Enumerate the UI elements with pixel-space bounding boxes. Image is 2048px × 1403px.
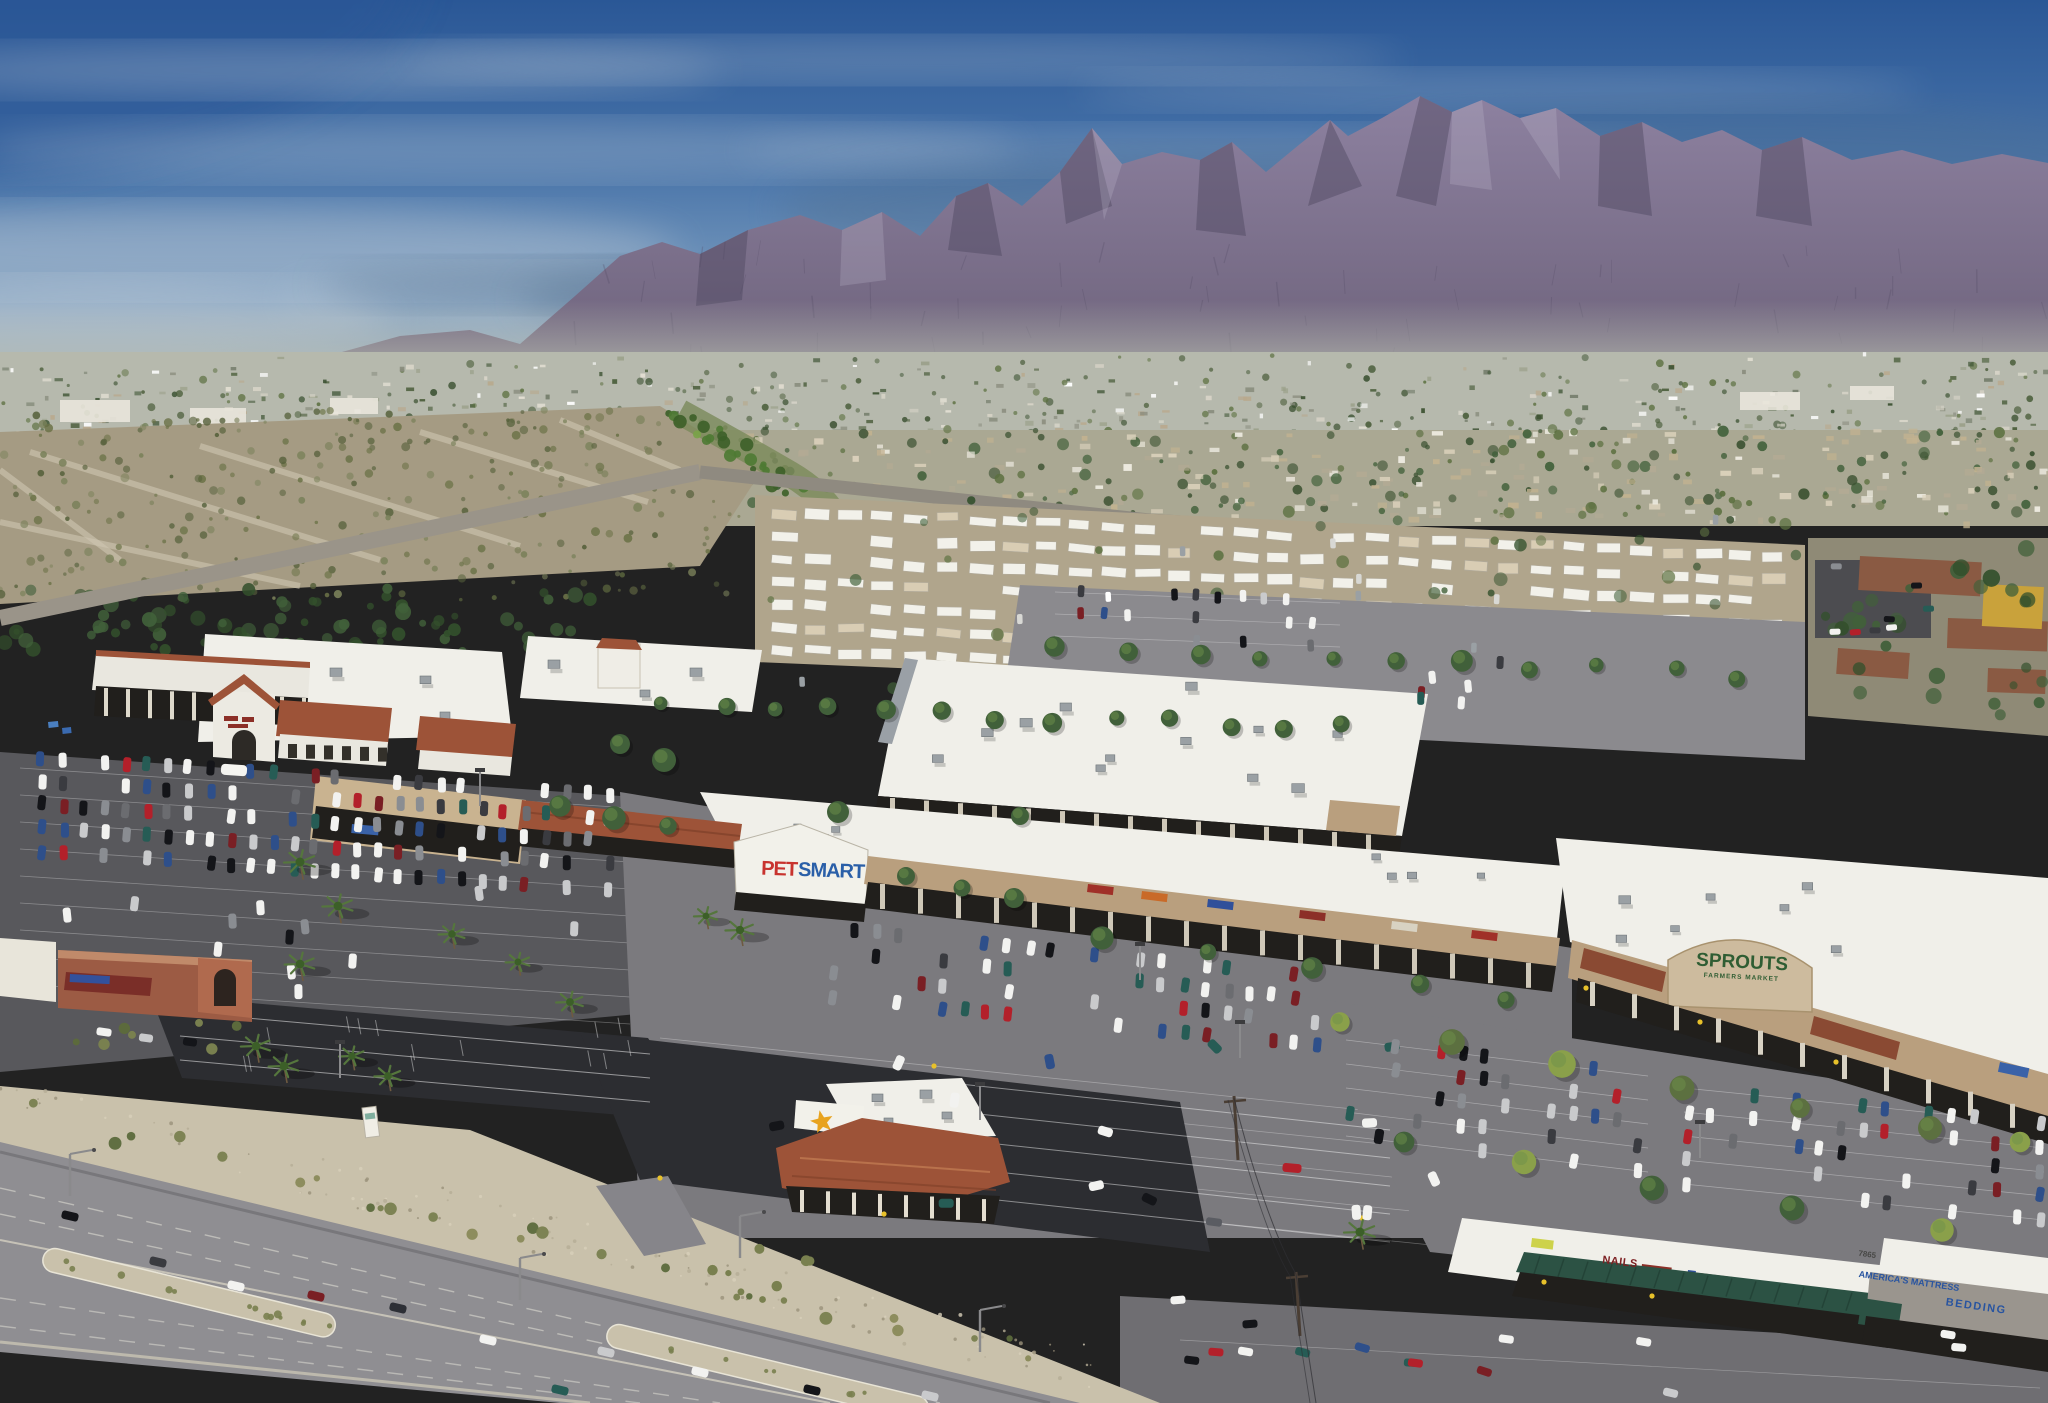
car [182,759,191,775]
car [1480,1048,1489,1064]
car [351,864,359,879]
car [1923,606,1934,612]
car [249,834,258,849]
car [162,804,170,819]
car [289,812,297,827]
car [1201,1003,1210,1018]
car [1496,656,1504,669]
car [123,757,132,773]
car [185,784,193,799]
car [1634,1163,1643,1178]
car [459,799,467,814]
car [1713,515,1719,525]
car [584,785,592,800]
car [101,824,109,839]
car [415,821,424,837]
car [938,978,947,993]
car [873,924,881,939]
car [1017,614,1023,624]
car [227,858,235,873]
car [162,783,170,798]
car [458,847,466,862]
car [348,953,357,969]
car [353,842,361,857]
car [246,764,254,779]
car [498,804,507,819]
car [1456,1118,1465,1134]
car [101,755,109,770]
car [437,869,445,884]
car [606,788,614,803]
car [1870,627,1881,633]
car [79,822,88,838]
car [213,941,222,957]
car [501,851,509,866]
car [961,1001,971,1017]
car [121,803,130,819]
car [1158,1023,1167,1039]
car [267,859,276,875]
car [61,823,69,838]
car [1682,1177,1691,1192]
car [1471,643,1477,653]
car [144,804,152,819]
car [164,852,172,867]
car [850,923,858,938]
car [1286,616,1293,628]
car [1171,588,1178,600]
car [1223,1005,1232,1021]
car [436,823,446,839]
car [1180,546,1186,556]
aerial-scene: PET SMART SPROUTS FARMERS MARKET NAILS 7… [0,0,2048,1403]
car [570,921,579,936]
car [1457,696,1465,709]
car [563,855,571,870]
car [1413,1114,1422,1130]
car [1310,1015,1319,1031]
car [416,797,424,812]
car [332,840,341,856]
car [331,863,340,878]
car [1240,590,1247,602]
car [498,827,506,842]
car [1157,953,1166,969]
car [1240,636,1247,648]
car [143,779,152,795]
car [1949,1130,1958,1146]
car [1829,629,1840,635]
car [60,799,69,814]
car [285,929,294,944]
car [1200,982,1210,998]
car [563,831,572,846]
car [1307,639,1314,651]
car [300,919,310,935]
car [330,816,340,832]
car [36,751,44,766]
car [38,774,47,789]
car [520,829,528,844]
car [59,845,67,860]
car [1478,1119,1487,1134]
car [393,869,401,884]
car [1850,629,1861,636]
car [1884,616,1895,622]
car [1362,1118,1377,1128]
car [1214,592,1221,604]
car [142,756,151,772]
car [354,817,364,833]
car [1077,607,1084,619]
car [2036,1212,2045,1228]
car [542,805,550,820]
car [1225,984,1234,999]
car [540,783,549,799]
car [122,827,131,843]
car [312,768,320,783]
car [331,769,339,784]
car [1902,1173,1911,1188]
car [1728,1133,1738,1149]
car [562,880,571,895]
car [1749,1111,1758,1126]
car [1078,585,1085,597]
car [101,800,110,816]
car [1479,1071,1488,1087]
car [1706,1108,1714,1123]
car [1124,609,1131,621]
car [1882,1195,1891,1211]
car [221,764,248,777]
car [1260,592,1267,604]
car [917,976,926,991]
car [1794,1139,1804,1155]
car [309,839,318,854]
car [437,799,445,814]
car [1501,1098,1510,1114]
car [1494,594,1500,604]
car [1750,1088,1759,1103]
car [394,820,404,836]
car [583,831,593,847]
car [1289,1034,1298,1050]
car [1859,1122,1868,1138]
car [2013,1209,2021,1224]
car [1282,1163,1302,1174]
car [1968,1180,1977,1196]
car [499,876,507,891]
car [1589,1061,1598,1077]
car [79,800,88,815]
car [1208,1347,1224,1356]
petsmart-sign-smart: SMART [798,859,866,883]
car [1362,1205,1372,1221]
car [1547,1129,1556,1144]
car [394,845,402,860]
car [1993,1182,2002,1197]
car [1170,1295,1186,1304]
car [606,856,615,871]
car [374,796,383,812]
car [520,850,529,865]
car [1991,1158,2000,1174]
car [799,677,805,687]
car [871,949,880,965]
car [1283,593,1290,605]
car [1951,1343,1967,1352]
car [1090,994,1100,1010]
car [374,842,383,857]
car [1179,1001,1188,1017]
car [290,836,300,852]
car [332,792,342,808]
car [142,827,151,842]
car [208,784,216,799]
car [37,795,47,811]
car [186,830,195,845]
car [1831,563,1842,569]
car [1355,591,1361,601]
car [62,907,72,923]
car [1156,977,1164,992]
aerial-photo-shopping-center: PET SMART SPROUTS FARMERS MARKET NAILS 7… [0,0,2048,1403]
plaza-red-sign [224,716,238,721]
car [229,785,237,800]
car [982,958,991,974]
car [1192,588,1199,600]
car [1886,624,1897,631]
car [1428,671,1436,685]
car [1003,1006,1013,1022]
car [1245,986,1253,1001]
car [1880,1124,1889,1139]
car [438,778,446,793]
car [374,867,384,883]
car [353,793,362,808]
car [37,819,47,835]
car [1330,538,1336,548]
car [228,833,237,849]
car [164,829,173,844]
car [1417,692,1424,705]
car [2035,1164,2044,1179]
car [205,832,214,847]
car [458,871,466,886]
car [1356,574,1362,584]
car [2035,1140,2044,1155]
car [1351,1205,1361,1221]
car [939,1199,954,1208]
car [1192,611,1199,623]
plaza-red-sign [228,724,248,728]
car [1313,1037,1322,1053]
car [184,806,192,821]
car [1813,1166,1822,1182]
car [1457,1093,1466,1109]
car [1464,679,1472,693]
car [480,801,489,816]
car [477,825,486,841]
car [228,913,237,928]
car [164,758,172,773]
car [1682,1151,1691,1167]
car [59,776,68,791]
car [981,1004,989,1019]
car [1003,961,1011,976]
car [397,796,405,811]
car [373,817,381,832]
car [122,778,130,793]
petsmart-sign-pet: PET [761,858,798,881]
car [1501,1074,1510,1089]
car [1478,1143,1487,1158]
car [1181,1024,1190,1040]
car [58,753,66,768]
car [415,845,423,860]
car [604,882,612,897]
plaza-red-sign [242,717,254,722]
car [939,953,948,968]
car [311,814,319,829]
car [894,928,903,943]
car [271,835,279,850]
monument-sign [362,1106,380,1137]
car [143,850,152,865]
car [1591,1108,1600,1123]
car [523,806,531,821]
car [1105,592,1111,602]
car [1269,1033,1278,1048]
car [1100,607,1108,620]
car [256,900,265,915]
car [206,760,215,775]
car [456,778,465,794]
car [1991,1136,2000,1151]
car [393,775,402,791]
car [414,870,422,885]
car [414,775,423,791]
car [294,984,302,999]
car [247,809,255,824]
car [1911,583,1922,589]
car [1242,1319,1258,1328]
car [1880,1101,1889,1116]
car [1860,1193,1870,1209]
car [99,848,108,863]
